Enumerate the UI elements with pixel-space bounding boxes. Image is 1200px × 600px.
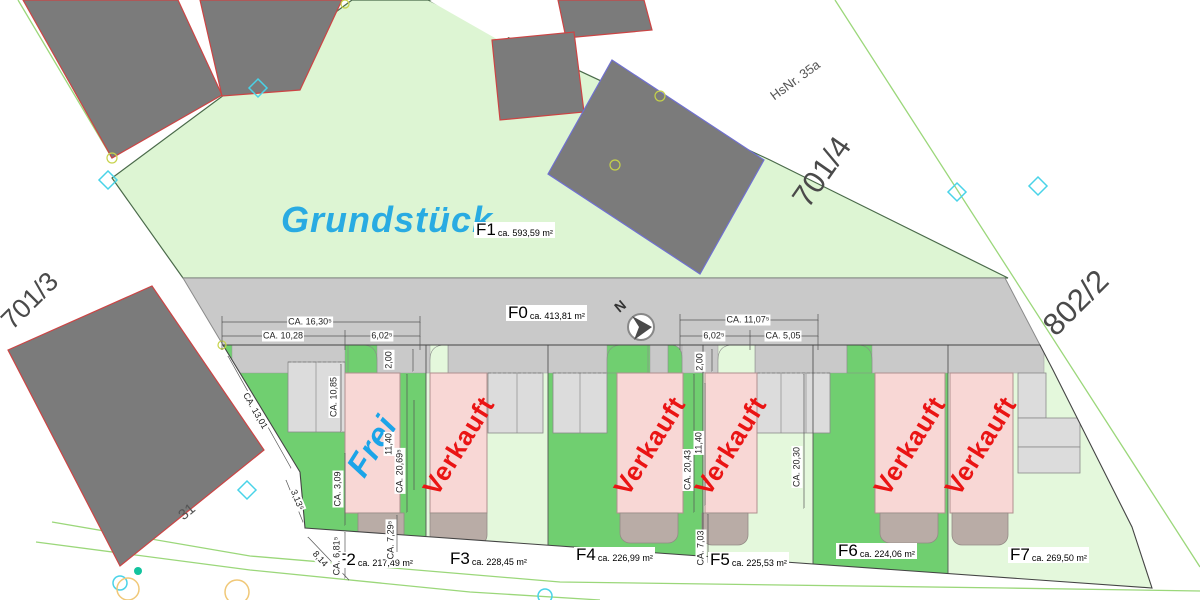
dim-label: CA. 7,03 — [696, 529, 707, 566]
dim-label: CA. 10,28 — [262, 331, 304, 342]
area-id-f0: F0 — [508, 305, 528, 321]
terrace — [702, 513, 748, 545]
area-id-f6: F6 — [838, 543, 858, 559]
dim-label: 2,00 — [384, 350, 395, 370]
apron — [872, 345, 1044, 373]
garage — [488, 373, 543, 433]
area-value-f2: ca. 217,49 m² — [356, 558, 413, 568]
building-mid-d — [492, 32, 584, 120]
dim-label: CA. 20,30 — [792, 446, 803, 488]
dim-label: CA. 3,09 — [333, 470, 344, 507]
garage — [1018, 418, 1080, 447]
dim-label: CA. 7,29⁵ — [386, 520, 397, 561]
garage — [1018, 373, 1046, 418]
area-id-f5: F5 — [710, 552, 730, 568]
terrace — [620, 513, 678, 543]
area-id-f4: F4 — [576, 547, 596, 563]
apron — [448, 345, 607, 373]
cutout — [847, 345, 872, 373]
dim-label: 6,02⁵ — [702, 331, 725, 342]
apron — [755, 345, 847, 373]
area-chip-f0: F0 ca. 413,81 m² — [506, 305, 587, 321]
area-chip-f1: F1 ca. 593,59 m² — [474, 222, 555, 238]
dim-label: 6,02⁵ — [370, 331, 393, 342]
cutout — [607, 345, 648, 373]
area-id-f1: F1 — [476, 222, 496, 238]
garage — [1018, 447, 1080, 473]
dim-label: CA. 16,30⁵ — [287, 317, 333, 328]
area-chip-f7: F7 ca. 269,50 m² — [1008, 547, 1089, 563]
dim-label: 11,40 — [384, 432, 395, 456]
area-value-f7: ca. 269,50 m² — [1030, 553, 1087, 563]
cutout — [718, 345, 755, 373]
area-value-f1: ca. 593,59 m² — [496, 228, 553, 238]
area-value-f6: ca. 224,06 m² — [858, 549, 915, 559]
area-id-f7: F7 — [1010, 547, 1030, 563]
area-chip-f2: F2 ca. 217,49 m² — [334, 552, 415, 568]
road-f0 — [183, 278, 1040, 345]
dim-label: 11,40 — [694, 431, 705, 455]
cutout — [348, 345, 377, 373]
area-chip-f6: F6 ca. 224,06 m² — [836, 543, 917, 559]
grundstueck-title: Grundstück — [281, 199, 493, 241]
area-id-f3: F3 — [450, 551, 470, 567]
dim-label: CA. 20,43 — [683, 449, 694, 491]
dim-label: CA. 6,81⁵ — [332, 536, 343, 577]
terrace — [952, 513, 1008, 545]
area-value-f3: ca. 228,45 m² — [470, 557, 527, 567]
dim-label: CA. 20,69⁵ — [395, 448, 406, 494]
north-arrow-icon — [628, 314, 654, 340]
area-chip-f3: F3 ca. 228,45 m² — [448, 551, 529, 567]
area-value-f0: ca. 413,81 m² — [528, 311, 585, 321]
area-value-f4: ca. 226,99 m² — [596, 553, 653, 563]
marker-dot-teal — [134, 567, 142, 575]
area-value-f5: ca. 225,53 m² — [730, 558, 787, 568]
area-chip-f4: F4 ca. 226,99 m² — [574, 547, 655, 563]
dim-label: CA. 11,07⁵ — [725, 315, 770, 326]
dim-label: 2,00 — [695, 352, 706, 372]
area-chip-f5: F5 ca. 225,53 m² — [708, 552, 789, 568]
terrace — [880, 513, 938, 543]
site-plan-page: { "plan": { "grundstueck_label": "Grunds… — [0, 0, 1200, 600]
dim-label: CA. 10,85 — [329, 376, 340, 418]
dim-label: CA. 5,05 — [764, 331, 801, 342]
